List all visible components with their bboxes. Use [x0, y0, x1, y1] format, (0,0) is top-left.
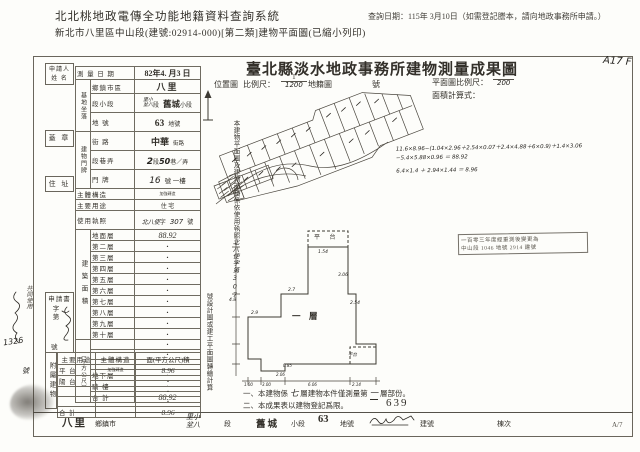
- usage-value: 住 宅: [135, 200, 201, 211]
- strip-lot-label: 地號: [340, 419, 354, 429]
- attached-area: ・: [136, 387, 201, 397]
- strip-seg-label: 段: [224, 419, 231, 429]
- strip-build-label: 建號: [420, 419, 434, 429]
- floor-value: ・: [135, 285, 201, 296]
- note-line2: 二、本成果表以建物登記爲限。: [243, 400, 348, 411]
- usage-label: 主要用途: [76, 200, 135, 211]
- strip-unit-label: 棟次: [497, 419, 511, 429]
- applicant-label: 申請人: [46, 64, 73, 73]
- attached-header-structure: 主體構造: [96, 353, 136, 365]
- system-title: 北北桃地政電傳全功能地籍資料查詢系統: [55, 8, 280, 24]
- scanned-building-survey-page: 北北桃地政電傳全功能地籍資料查詢系統 查詢日期：115年 3月10日（如需登記謄…: [0, 0, 640, 452]
- attached-structure: [96, 397, 136, 407]
- resurvey-stamp: 一百零三年度經重測後變更為 中山段 1046 地號 2914 建號: [458, 232, 588, 255]
- strip-section-label: 小段: [291, 419, 305, 429]
- survey-date-value: 82年4. 月3 日: [135, 67, 201, 80]
- floor-label: [91, 340, 135, 350]
- attached-area: ・: [136, 376, 201, 387]
- strip-lot-value: 63: [318, 414, 329, 425]
- scale-ratio-label: 比例尺：: [243, 79, 275, 90]
- floor-label: 第九層: [91, 318, 135, 329]
- dim-label: 1.54: [318, 250, 328, 255]
- building-group-label: 建物門牌: [76, 132, 91, 189]
- lane-value: 2段50巷／弄: [135, 151, 201, 170]
- section-handwritten: 里小坌八: [143, 98, 153, 108]
- attached-use: [58, 397, 96, 407]
- street-label: 街 路: [91, 132, 135, 151]
- door-value: 16 號 一樓: [135, 170, 201, 189]
- query-date: 查詢日期：115年 3月10日（如需登記謄本，請向地政事務所申請。）: [368, 11, 606, 22]
- dim-label: 2.7: [288, 288, 295, 293]
- attached-use: [58, 387, 96, 397]
- floor-value: ・: [135, 318, 201, 329]
- attached-header-use: 主要用途: [58, 353, 96, 365]
- plan-scale-label: 平面圖比例尺：: [432, 77, 488, 88]
- structure-label: 主體構造: [76, 189, 135, 200]
- strip-section-handwritten: 里小坌八: [186, 413, 200, 429]
- application-no-prefix: 字第: [49, 305, 59, 322]
- attached-area: 8.96: [136, 365, 201, 376]
- floor-label: 第七層: [91, 296, 135, 307]
- plan-scale-fraction: 1 200: [493, 72, 514, 87]
- strip-township-label: 鄉鎮市: [95, 419, 116, 429]
- attached-header-area: 面(平方公尺)積: [136, 353, 201, 365]
- township-label: 鄉鎮市區: [91, 80, 135, 94]
- dim-label: 2.54: [350, 301, 360, 306]
- seal-box: 蓋 章: [45, 130, 74, 147]
- section-label: 段小段: [91, 94, 135, 113]
- plan-scale-denominator: 200: [493, 79, 514, 87]
- dim-label: 0.85: [283, 363, 292, 368]
- floor-value: ・: [135, 329, 201, 340]
- margin-note-suffix: 號: [22, 366, 29, 376]
- dim-label: 2.9: [251, 311, 258, 316]
- street-value: 中華 街路: [135, 132, 201, 151]
- floor-value: ・: [135, 241, 201, 252]
- township-value: 八里: [135, 80, 201, 94]
- floor-label: 第四層: [91, 263, 135, 274]
- floor-value: ・: [135, 274, 201, 285]
- stamp-line2: 中山段 1046 地號 2914 建號: [461, 242, 585, 252]
- scale-denominator: 1200: [281, 81, 307, 89]
- floor-label: 第八層: [91, 307, 135, 318]
- section-value: 里小坌八 段 舊城小段: [135, 94, 201, 113]
- strip-buildno-handwritten-scribble: [368, 414, 416, 428]
- application-no-suffix: 號: [51, 341, 58, 351]
- floor-label: 第二層: [91, 241, 135, 252]
- plan-scale-numerator: 1: [502, 72, 506, 79]
- attached-building-table: 主要用途 主體構造 面(平方公尺)積 平 台 加強磚造 8.96 陽 台 ・ ・…: [57, 352, 201, 418]
- floor-value: ・: [135, 340, 201, 350]
- note-line1: 一、本建物係 七 層建物本件僅測量第 一 層部份。: [243, 387, 410, 399]
- dim-label: 3.06: [338, 273, 348, 278]
- license-value: 北八使字 307 號: [135, 211, 201, 230]
- floor-value: 88.92: [135, 230, 201, 241]
- structure-value: 加強磚造: [135, 189, 201, 200]
- note-floors-handwritten: 七: [290, 389, 299, 399]
- bottom-strip-divider: [33, 412, 633, 413]
- cadastre-no-label: 號: [372, 79, 380, 90]
- door-label: 門 牌: [91, 170, 135, 189]
- name-label: 姓 名: [46, 73, 73, 82]
- page-number: A/7: [612, 421, 623, 429]
- strip-section-value: 舊城: [256, 416, 279, 430]
- margin-note-shared-use: 共同使用: [24, 285, 33, 343]
- note-level-handwritten: 一: [370, 389, 379, 400]
- license-label: 使用執照: [76, 211, 135, 230]
- attached-structure: 加強磚造: [96, 365, 136, 376]
- attached-area: ・: [136, 397, 201, 407]
- floor-area-group-label: 建築面積: [76, 230, 91, 340]
- site-group-label: 基地坐落: [76, 80, 91, 132]
- floor-label: 地面層: [91, 230, 135, 241]
- floor-value: ・: [135, 296, 201, 307]
- applicant-name-box: 申請人 姓 名: [45, 63, 74, 85]
- floor-label: 第六層: [91, 285, 135, 296]
- document-subtitle: 新北市八里區中山段(建號:02914-000)[第二類]建物平面圖(已縮小列印): [55, 25, 366, 39]
- attached-structure: [96, 376, 136, 387]
- lot-value: 63 地號: [135, 113, 201, 132]
- corner-handwritten-note: A17 F: [603, 55, 632, 68]
- floor-value: ・: [135, 307, 201, 318]
- floor-label: 第三層: [91, 252, 135, 263]
- attached-structure: [96, 387, 136, 397]
- handwritten-scribble: [59, 305, 73, 341]
- dim-label: 2.06: [276, 372, 285, 377]
- lane-label: 段巷弄: [91, 151, 135, 170]
- floor-label: 第五層: [91, 274, 135, 285]
- strip-township-value: 八里: [62, 415, 87, 430]
- scale-numerator: 1: [292, 74, 296, 81]
- location-scale-fraction: 1 1200: [281, 74, 307, 89]
- floor-value: ・: [135, 263, 201, 274]
- floor-label: 第十層: [91, 329, 135, 340]
- cadastre-map-label: 地籍圖: [308, 79, 332, 90]
- location-map-label: 位置圖: [214, 79, 238, 90]
- address-box: 住 址: [45, 176, 74, 192]
- lot-label: 地 號: [91, 113, 135, 132]
- application-label: 申請書: [46, 293, 73, 303]
- calc-line: −5.4×5.88×0.96 ＝ 88.92: [396, 151, 582, 163]
- dim-label: 4.8: [229, 298, 236, 303]
- floor-value: ・: [135, 252, 201, 263]
- floor-level-label: 一 層: [292, 310, 318, 322]
- vertical-note-col2: 號設計圖或建工平面圖轉繪計算: [203, 293, 213, 405]
- floor-plan-drawing: [228, 224, 396, 392]
- old-building-number: 639: [386, 397, 409, 409]
- handwritten-area-calc: 11.6×8.96−(1.04×2.96＋2.54×0.07＋2.4×4.88＋…: [396, 142, 583, 176]
- attached-use: 陽 台: [58, 376, 96, 387]
- top-platform-label: 平 台: [314, 232, 340, 241]
- attached-use: 平 台: [58, 365, 96, 376]
- bottom-platform-label: 平台: [348, 352, 357, 358]
- survey-date-label: 測 量 日 期: [76, 67, 135, 80]
- application-no-box: 申請書 字第 號: [45, 292, 74, 353]
